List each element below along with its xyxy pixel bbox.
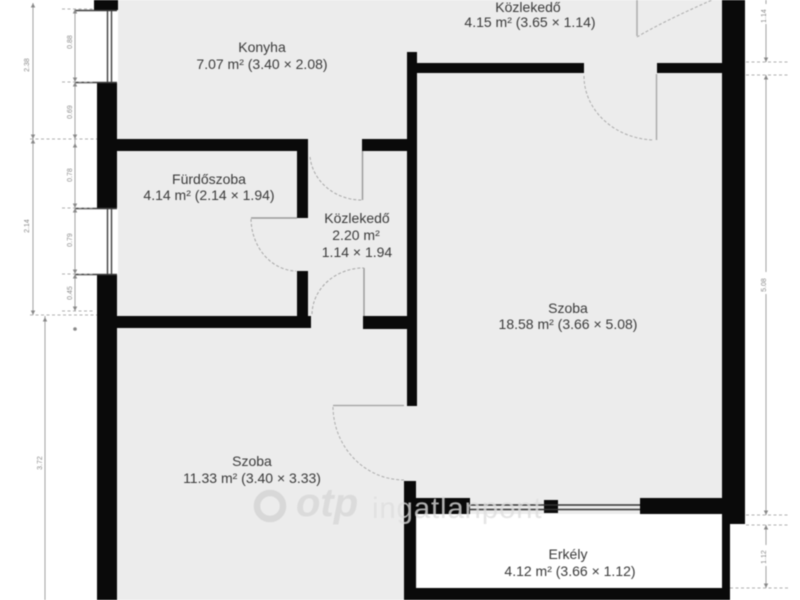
svg-text:1.14 × 1.94: 1.14 × 1.94 <box>322 244 393 260</box>
svg-text:0.78: 0.78 <box>67 168 74 182</box>
svg-text:Fürdőszoba: Fürdőszoba <box>172 171 246 187</box>
svg-text:1.12: 1.12 <box>761 550 768 564</box>
svg-text:5.08: 5.08 <box>761 278 768 292</box>
svg-text:2.14: 2.14 <box>24 219 31 233</box>
svg-text:ingatlanpont: ingatlanpont <box>372 492 542 525</box>
svg-text:18.58 m² (3.66 × 5.08): 18.58 m² (3.66 × 5.08) <box>499 316 638 332</box>
svg-text:Közlekedő: Közlekedő <box>495 0 561 15</box>
svg-text:0.88: 0.88 <box>67 35 74 49</box>
svg-text:Közlekedő: Közlekedő <box>324 210 390 226</box>
svg-text:2.20 m²: 2.20 m² <box>332 227 380 243</box>
svg-text:4.14 m² (2.14 × 1.94): 4.14 m² (2.14 × 1.94) <box>143 187 274 203</box>
svg-text:7.07 m² (3.40 × 2.08): 7.07 m² (3.40 × 2.08) <box>196 56 327 72</box>
svg-text:4.12 m² (3.66 × 1.12): 4.12 m² (3.66 × 1.12) <box>504 563 635 579</box>
svg-text:2.38: 2.38 <box>24 58 31 72</box>
svg-text:Szoba: Szoba <box>548 300 588 316</box>
svg-text:Erkély: Erkély <box>549 546 588 562</box>
svg-text:0.45: 0.45 <box>67 286 74 300</box>
svg-text:0.69: 0.69 <box>67 105 74 119</box>
svg-text:0.79: 0.79 <box>67 233 74 247</box>
svg-text:4.15 m² (3.65 × 1.14): 4.15 m² (3.65 × 1.14) <box>464 14 595 30</box>
svg-text:1.14: 1.14 <box>761 9 768 23</box>
svg-text:3.72: 3.72 <box>37 456 44 470</box>
svg-text:Konyha: Konyha <box>238 39 286 55</box>
svg-text:otp: otp <box>296 481 358 525</box>
svg-text:Szoba: Szoba <box>232 453 272 469</box>
